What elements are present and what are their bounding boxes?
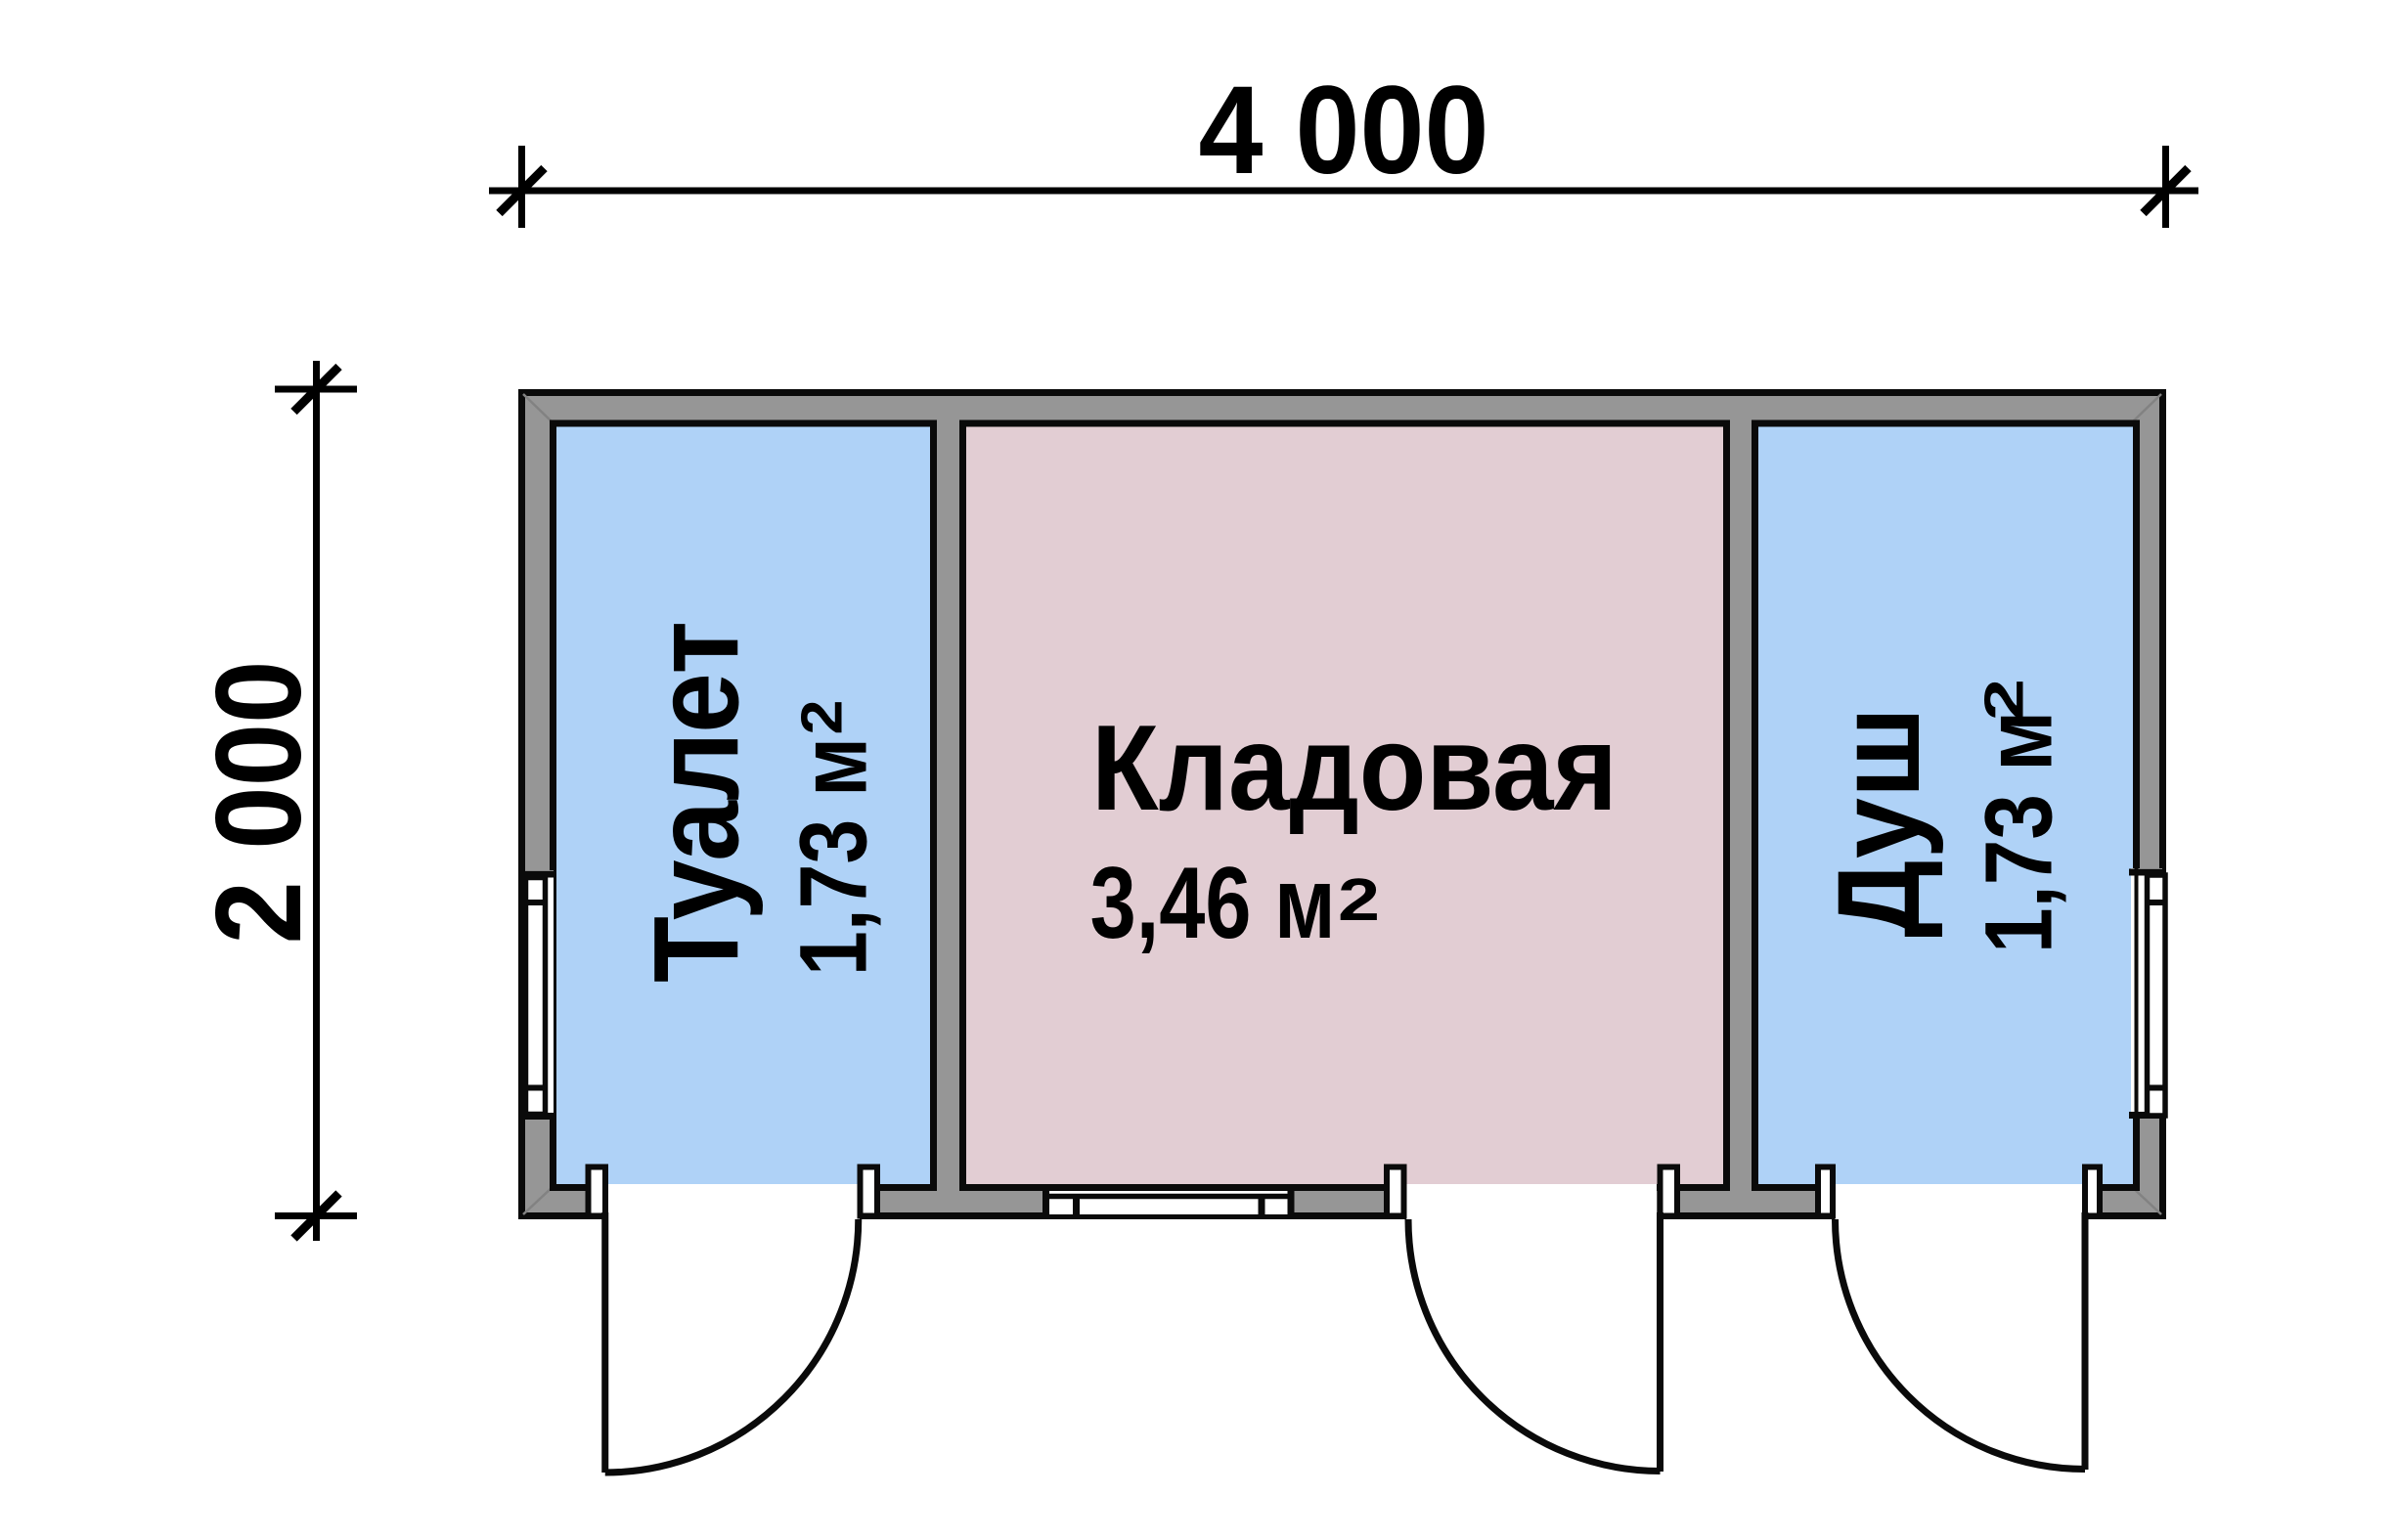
svg-text:2: 2 [790, 700, 855, 735]
svg-text:3,46 м: 3,46 м [1090, 847, 1336, 960]
svg-text:2: 2 [1338, 866, 1380, 933]
svg-text:2 000: 2 000 [192, 661, 327, 945]
svg-text:1,73 м: 1,73 м [780, 737, 887, 976]
svg-text:2: 2 [1974, 679, 2036, 721]
svg-text:Кладовая: Кладовая [1091, 701, 1618, 836]
svg-text:1,73 м: 1,73 м [1966, 711, 2072, 953]
svg-text:4 000: 4 000 [1199, 61, 1489, 200]
svg-text:Душ: Душ [1813, 707, 1944, 938]
svg-text:Туалет: Туалет [631, 621, 765, 983]
